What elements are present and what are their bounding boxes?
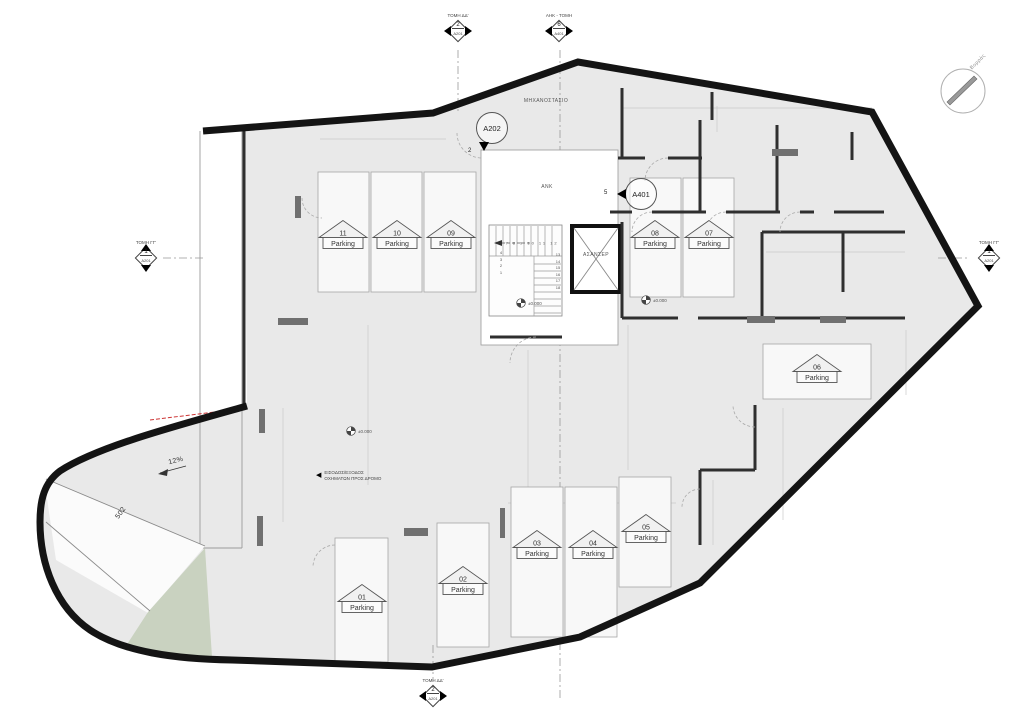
detail-marker: A202 2 <box>476 112 508 144</box>
parking-space-number: 08 <box>651 231 659 238</box>
benchmark-icon <box>346 426 356 436</box>
exit-note-line2: ΟΧΗΜΑΤΩΝ ΠΡΟΣ ΔΡΟΜΟ <box>324 476 381 481</box>
section-marker-diamond-icon: 1 A201 <box>977 246 1001 270</box>
parking-space-symbol: 11 Parking <box>315 219 371 256</box>
section-marker-number: 1 <box>140 249 152 256</box>
level-marker: ±0.000 <box>516 298 542 308</box>
parking-symbol-icon: 03 Parking <box>509 529 565 561</box>
parking-space-number: 03 <box>533 541 541 548</box>
parking-space-symbol: 08 Parking <box>627 219 683 256</box>
section-marker-label: ΤΟΜΗ ΔΔ' <box>438 13 478 18</box>
parking-symbol-icon: 04 Parking <box>565 529 621 561</box>
parking-space-number: 02 <box>459 577 467 584</box>
parking-symbol-icon: 07 Parking <box>681 219 737 251</box>
parking-symbol-icon: 06 Parking <box>789 353 845 385</box>
section-marker-diamond-icon: 1 A201 <box>134 246 158 270</box>
parking-space-symbol: 10 Parking <box>369 219 425 256</box>
parking-symbol-icon: 10 Parking <box>369 219 425 251</box>
parking-space-label: Parking <box>805 375 829 382</box>
section-marker-sheet: A201 <box>134 258 158 263</box>
parking-space-symbol: 01 Parking <box>334 583 390 620</box>
parking-space-number: 11 <box>339 231 346 238</box>
parking-space-symbol: 02 Parking <box>435 565 491 602</box>
parking-space-label: Parking <box>581 551 605 558</box>
benchmark-icon <box>641 295 651 305</box>
elevator-lobby-label: ΑΝΚ <box>541 184 552 190</box>
parking-space-number: 05 <box>642 525 650 532</box>
stair-run-numbers: 7 8 9 10 11 12 <box>505 241 558 246</box>
section-marker: ΤΟΜΗ ΔΔ' 2 A201 <box>413 678 453 708</box>
level-value: ±0.000 <box>653 298 667 303</box>
section-arrow-icon <box>141 265 151 277</box>
parking-space-number: 06 <box>813 365 821 372</box>
benchmark-icon <box>516 298 526 308</box>
parking-space-symbol: 05 Parking <box>618 513 674 550</box>
section-marker-number: 1 <box>983 249 995 256</box>
parking-space-number: 07 <box>705 231 713 238</box>
level-value: ±0.000 <box>528 301 542 306</box>
parking-space-symbol: 04 Parking <box>565 529 621 566</box>
stair-left-numbers: 4 3 2 1 <box>496 250 506 276</box>
parking-symbol-icon: 01 Parking <box>334 583 390 615</box>
section-marker-number: 6 <box>553 22 565 29</box>
level-marker: ±0.000 <box>346 426 372 436</box>
section-arrow-icon <box>440 691 452 701</box>
section-marker-sheet: A201 <box>977 258 1001 263</box>
parking-space-label: Parking <box>439 241 463 248</box>
parking-space-symbol: 03 Parking <box>509 529 565 566</box>
section-arrow-icon <box>984 265 994 277</box>
section-marker: ΤΟΜΗ ΔΔ' 2 A201 <box>438 13 478 43</box>
parking-symbol-icon: 02 Parking <box>435 565 491 597</box>
north-arrow-icon <box>941 69 985 113</box>
detail-marker-number: 2 <box>468 148 471 154</box>
parking-space-label: Parking <box>385 241 409 248</box>
level-value: ±0.000 <box>358 429 372 434</box>
section-marker-diamond-icon: 6 A401 <box>547 19 571 43</box>
detail-marker: A401 5 <box>625 178 657 210</box>
parking-space-number: 04 <box>589 541 597 548</box>
parking-symbol-icon: 08 Parking <box>627 219 683 251</box>
parking-space-number: 09 <box>447 231 455 238</box>
vehicle-exit-note: ◀ ΕΙΣΟΔΟΣ/ΕΞΟΔΟΣ ΟΧΗΜΑΤΩΝ ΠΡΟΣ ΔΡΟΜΟ <box>316 470 381 481</box>
parking-space-symbol: 09 Parking <box>423 219 479 256</box>
section-marker-number: 2 <box>452 22 464 29</box>
stair-side-numbers: 13 14 15 16 17 18 <box>553 252 563 292</box>
section-arrow-icon <box>465 26 477 36</box>
parking-space-label: Parking <box>451 587 475 594</box>
parking-space-label: Parking <box>525 551 549 558</box>
parking-symbol-icon: 05 Parking <box>618 513 674 545</box>
detail-marker-arrow-icon <box>479 142 489 156</box>
floor-plan-page: ΜΗΧΑΝΟΣΤΑΣΙΟ ΑΝΚ ΑΣΑΝΣΕΡ Βορράς 12% 502 … <box>0 0 1024 724</box>
parking-space-number: 10 <box>393 231 401 238</box>
section-marker-label: ΤΟΜΗ ΔΔ' <box>413 678 453 683</box>
floor-plan-linework <box>0 0 1024 724</box>
section-marker-number: 2 <box>427 687 439 694</box>
exit-arrow-icon: ◀ <box>316 472 321 479</box>
parking-space-symbol: 06 Parking <box>789 353 845 390</box>
machine-room-label: ΜΗΧΑΝΟΣΤΑΣΙΟ <box>524 98 568 104</box>
parking-symbol-icon: 09 Parking <box>423 219 479 251</box>
section-marker-label: ΑΗΚ - ΤΟΜΗ <box>539 13 579 18</box>
detail-marker-number: 5 <box>604 190 607 196</box>
parking-symbol-icon: 11 Parking <box>315 219 371 251</box>
parking-space-label: Parking <box>350 605 374 612</box>
section-marker-diamond-icon: 2 A201 <box>421 684 445 708</box>
section-arrow-icon <box>566 26 578 36</box>
detail-marker-bubble: A202 <box>476 112 508 144</box>
parking-space-label: Parking <box>643 241 667 248</box>
section-marker-diamond-icon: 2 A201 <box>446 19 470 43</box>
parking-space-label: Parking <box>331 241 355 248</box>
parking-space-label: Parking <box>634 535 658 542</box>
section-marker: ΤΟΜΗ ΓΓ' 1 A201 <box>126 240 166 270</box>
parking-space-number: 01 <box>358 595 366 602</box>
parking-space-label: Parking <box>697 241 721 248</box>
elevator-shaft <box>572 226 620 292</box>
parking-space-symbol: 07 Parking <box>681 219 737 256</box>
elevator-label: ΑΣΑΝΣΕΡ <box>583 252 609 258</box>
detail-marker-bubble: A401 <box>625 178 657 210</box>
exit-note-line1: ΕΙΣΟΔΟΣ/ΕΞΟΔΟΣ <box>324 470 363 475</box>
level-marker: ±0.000 <box>641 295 667 305</box>
section-marker: ΤΟΜΗ ΓΓ' 1 A201 <box>969 240 1009 270</box>
section-marker: ΑΗΚ - ΤΟΜΗ 6 A401 <box>539 13 579 43</box>
detail-marker-arrow-icon <box>612 189 626 199</box>
